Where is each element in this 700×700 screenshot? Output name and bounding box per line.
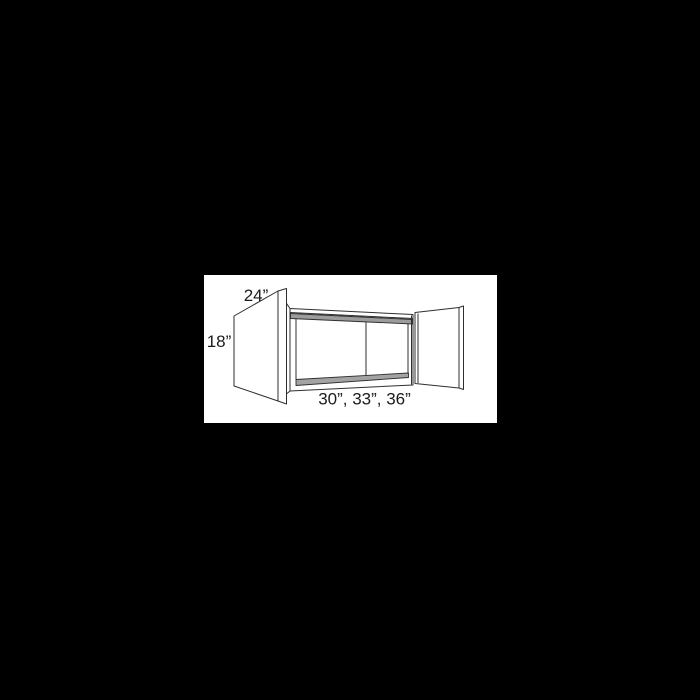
width-dimension-label: 30”, 33”, 36” <box>318 390 411 409</box>
page-background: 24” 18” 30”, 33”, 36” <box>0 0 700 700</box>
right-door-face <box>415 308 459 389</box>
depth-dimension-label: 24” <box>244 286 269 305</box>
cabinet-line-art <box>234 289 464 405</box>
left-door-face <box>234 291 278 401</box>
cabinet-diagram: 24” 18” 30”, 33”, 36” <box>204 275 497 423</box>
product-image-canvas: 24” 18” 30”, 33”, 36” <box>204 275 497 423</box>
left-door-edge <box>278 289 287 405</box>
right-door-edge <box>459 306 464 390</box>
height-dimension-label: 18” <box>207 332 232 351</box>
